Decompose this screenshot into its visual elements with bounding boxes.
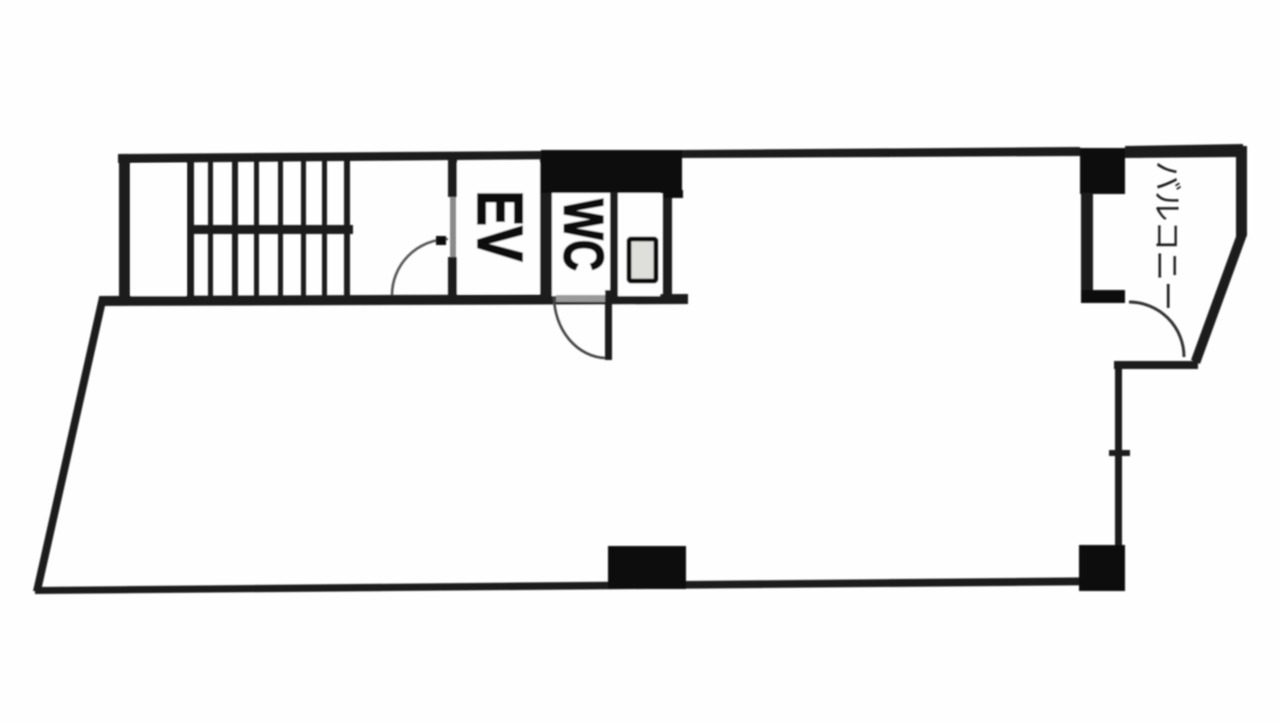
- svg-text:EV: EV: [464, 191, 536, 262]
- svg-text:バルコニー: バルコニー: [1150, 161, 1182, 311]
- svg-text:WC: WC: [553, 199, 616, 271]
